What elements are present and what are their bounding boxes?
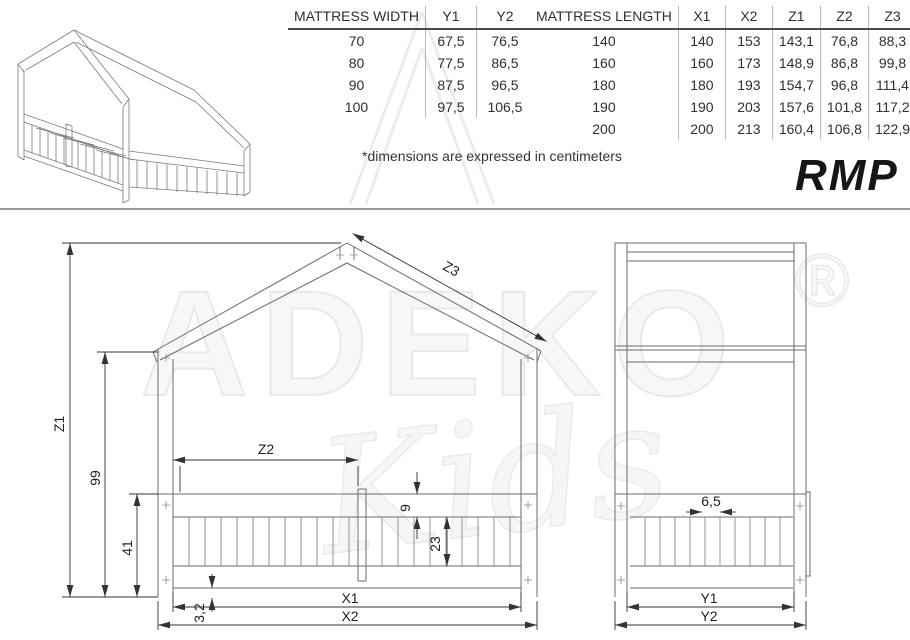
cell: 213 xyxy=(725,118,772,140)
cell: 70 xyxy=(288,29,425,52)
cell: 111,4 xyxy=(868,74,910,96)
table-row: 140 140 153 143,1 76,8 88,3 xyxy=(530,29,910,52)
front-view-dimensions: Z1 99 41 Z2 Z3 9 23 3,2 X1 X2 xyxy=(51,234,547,631)
cell: 88,3 xyxy=(868,29,910,52)
col-header-x2: X2 xyxy=(725,6,772,29)
dim-label-y2: Y2 xyxy=(700,608,717,624)
cell: 117,2 xyxy=(868,96,910,118)
dim-label-z2: Z2 xyxy=(258,441,275,457)
cell: 86,8 xyxy=(820,52,868,74)
dim-label-41: 41 xyxy=(119,540,135,556)
cell: 87,5 xyxy=(425,74,476,96)
table-row: 200 200 213 160,4 106,8 122,9 xyxy=(530,118,910,140)
dim-label-3-2: 3,2 xyxy=(191,603,207,623)
cell: 90 xyxy=(288,74,425,96)
cell: 96,8 xyxy=(820,74,868,96)
cell: 160 xyxy=(530,52,678,74)
mattress-length-table: MATTRESS LENGTH X1 X2 Z1 Z2 Z3 140 140 1… xyxy=(530,6,910,140)
cell: 160 xyxy=(678,52,725,74)
cell: 77,5 xyxy=(425,52,476,74)
cell: 160,4 xyxy=(772,118,820,140)
col-header-y2: Y2 xyxy=(476,6,533,29)
cell: 157,6 xyxy=(772,96,820,118)
cell: 76,5 xyxy=(476,29,533,52)
col-header-mattress-width: MATTRESS WIDTH xyxy=(288,6,425,29)
cell: 203 xyxy=(725,96,772,118)
table-row: 90 87,5 96,5 xyxy=(288,74,533,96)
cell: 153 xyxy=(725,29,772,52)
side-view-drawing xyxy=(615,243,810,597)
technical-drawing: Z1 99 41 Z2 Z3 9 23 3,2 X1 X2 6,5 Y1 Y2 xyxy=(0,210,910,640)
cell: 140 xyxy=(530,29,678,52)
section-divider xyxy=(0,208,910,210)
dim-label-x2: X2 xyxy=(341,608,358,624)
cell: 180 xyxy=(530,74,678,96)
col-header-z3: Z3 xyxy=(868,6,910,29)
cell: 200 xyxy=(678,118,725,140)
table-row: 70 67,5 76,5 xyxy=(288,29,533,52)
cell: 86,5 xyxy=(476,52,533,74)
cell: 96,5 xyxy=(476,74,533,96)
cell: 193 xyxy=(725,74,772,96)
cell: 140 xyxy=(678,29,725,52)
cell: 190 xyxy=(678,96,725,118)
dim-label-x1: X1 xyxy=(341,590,358,606)
cell: 200 xyxy=(530,118,678,140)
cell: 100 xyxy=(288,96,425,118)
col-header-z1: Z1 xyxy=(772,6,820,29)
dim-label-23: 23 xyxy=(427,536,443,552)
cell: 101,8 xyxy=(820,96,868,118)
dim-label-6-5: 6,5 xyxy=(701,493,721,509)
cell: 106,8 xyxy=(820,118,868,140)
cell: 99,8 xyxy=(868,52,910,74)
front-view-drawing xyxy=(153,243,541,597)
joint-marks xyxy=(162,251,532,584)
cell: 106,5 xyxy=(476,96,533,118)
cell: 154,7 xyxy=(772,74,820,96)
table-header-row: MATTRESS WIDTH Y1 Y2 xyxy=(288,6,533,29)
side-slats xyxy=(645,517,780,566)
cell: 97,5 xyxy=(425,96,476,118)
mattress-width-table: MATTRESS WIDTH Y1 Y2 70 67,5 76,5 80 77,… xyxy=(288,6,533,118)
cell: 122,9 xyxy=(868,118,910,140)
table-row: 80 77,5 86,5 xyxy=(288,52,533,74)
col-header-y1: Y1 xyxy=(425,6,476,29)
cell: 67,5 xyxy=(425,29,476,52)
col-header-x1: X1 xyxy=(678,6,725,29)
bed-sketch xyxy=(2,4,287,214)
table-header-row: MATTRESS LENGTH X1 X2 Z1 Z2 Z3 xyxy=(530,6,910,29)
side-view-dimensions: 6,5 Y1 Y2 xyxy=(615,493,806,630)
cell: 180 xyxy=(678,74,725,96)
table-row: 100 97,5 106,5 xyxy=(288,96,533,118)
col-header-mattress-length: MATTRESS LENGTH xyxy=(530,6,678,29)
dim-label-9: 9 xyxy=(397,504,413,512)
dim-label-y1: Y1 xyxy=(700,590,717,606)
table-row: 180 180 193 154,7 96,8 111,4 xyxy=(530,74,910,96)
table-row: 160 160 173 148,9 86,8 99,8 xyxy=(530,52,910,74)
col-header-z2: Z2 xyxy=(820,6,868,29)
cell: 173 xyxy=(725,52,772,74)
front-slats xyxy=(189,517,510,566)
dim-label-z1: Z1 xyxy=(51,416,67,433)
cell: 76,8 xyxy=(820,29,868,52)
cell: 80 xyxy=(288,52,425,74)
table-row: 190 190 203 157,6 101,8 117,2 xyxy=(530,96,910,118)
cell: 190 xyxy=(530,96,678,118)
cell: 143,1 xyxy=(772,29,820,52)
cell: 148,9 xyxy=(772,52,820,74)
units-note: *dimensions are expressed in centimeters xyxy=(362,148,622,164)
dim-label-99: 99 xyxy=(87,470,103,486)
model-name: RMP xyxy=(795,154,899,198)
dim-label-z3: Z3 xyxy=(440,258,462,280)
